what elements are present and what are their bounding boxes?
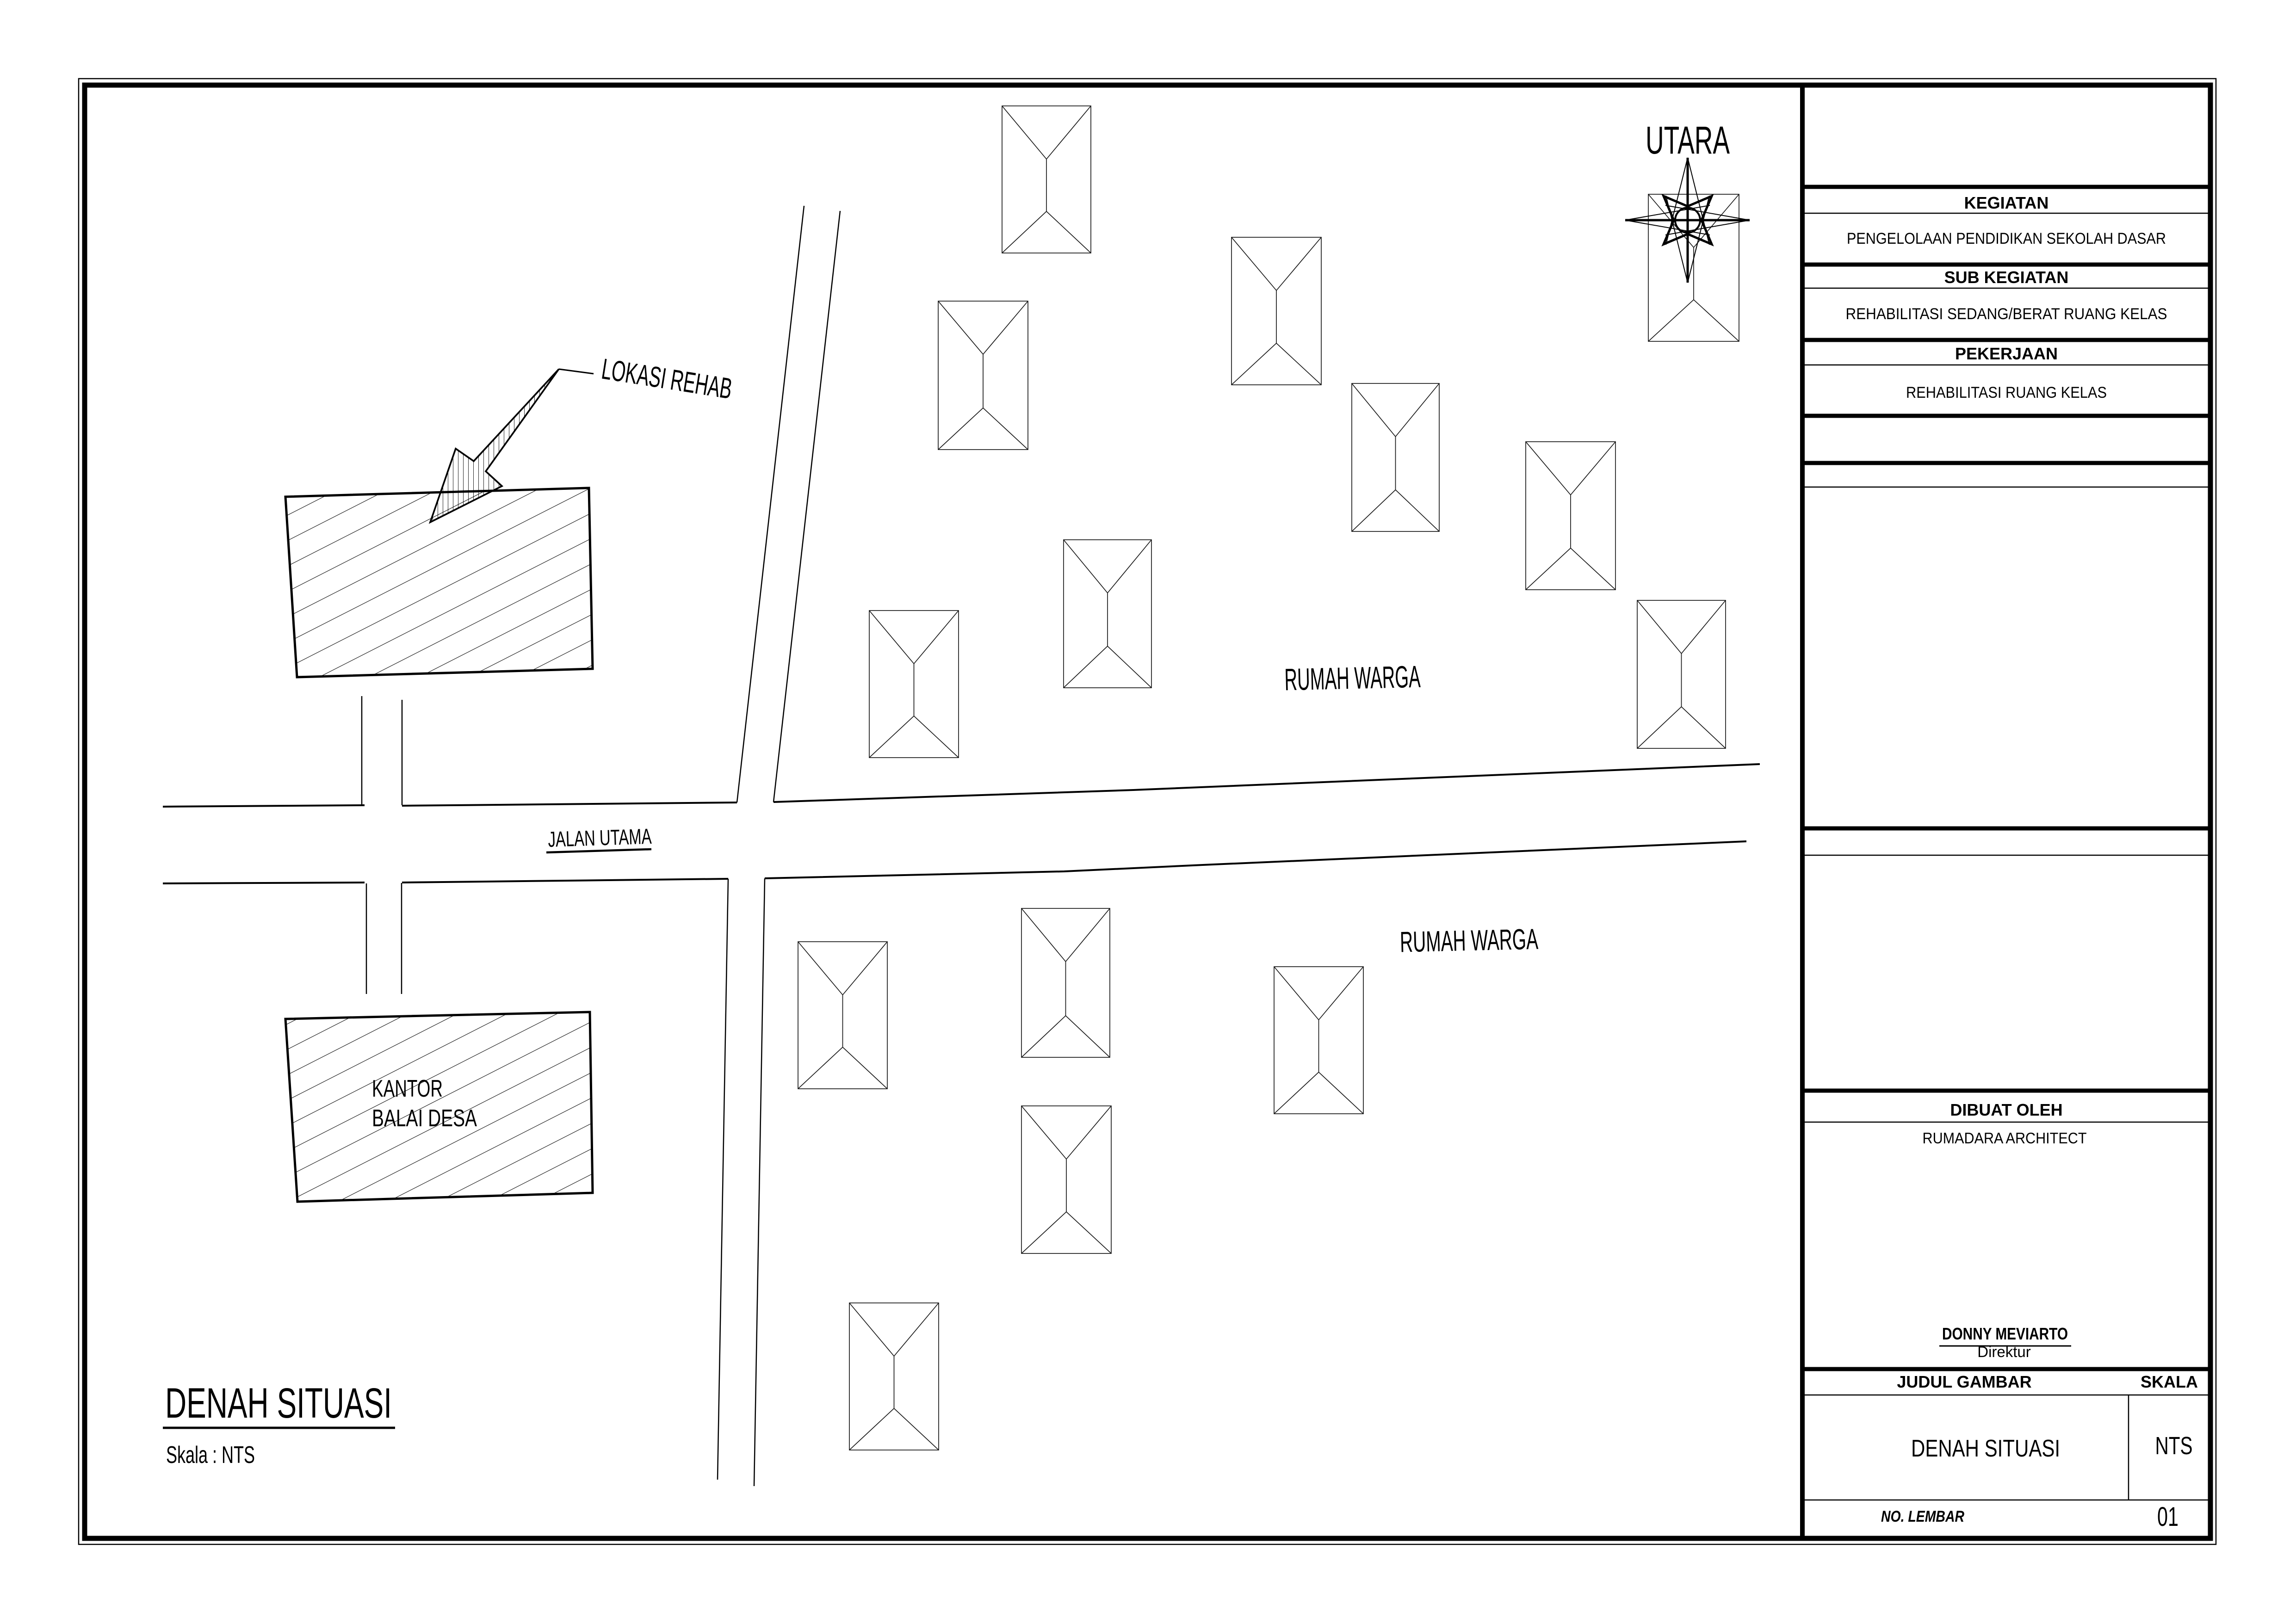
svg-text:PEKERJAAN: PEKERJAAN xyxy=(1955,344,2058,363)
svg-text:01: 01 xyxy=(2157,1502,2178,1532)
svg-text:DIBUAT OLEH: DIBUAT OLEH xyxy=(1950,1100,2062,1119)
svg-text:JUDUL GAMBAR: JUDUL GAMBAR xyxy=(1897,1372,2031,1391)
svg-text:REHABILITASI RUANG KELAS: REHABILITASI RUANG KELAS xyxy=(1906,384,2107,401)
svg-text:RUMADARA ARCHITECT: RUMADARA ARCHITECT xyxy=(1923,1129,2087,1147)
svg-text:RUMAH WARGA: RUMAH WARGA xyxy=(1284,660,1421,697)
svg-text:UTARA: UTARA xyxy=(1646,118,1730,162)
svg-text:Skala : NTS: Skala : NTS xyxy=(166,1442,255,1469)
svg-text:RUMAH WARGA: RUMAH WARGA xyxy=(1399,923,1539,959)
svg-text:KANTOR: KANTOR xyxy=(372,1075,443,1102)
svg-text:DENAH SITUASI: DENAH SITUASI xyxy=(1911,1435,2060,1462)
svg-text:DENAH SITUASI: DENAH SITUASI xyxy=(165,1380,392,1427)
svg-text:SKALA: SKALA xyxy=(2141,1372,2198,1391)
svg-text:KEGIATAN: KEGIATAN xyxy=(1964,193,2049,212)
svg-text:BALAI DESA: BALAI DESA xyxy=(372,1105,477,1132)
svg-text:PENGELOLAAN PENDIDIKAN SEKOLAH: PENGELOLAAN PENDIDIKAN SEKOLAH DASAR xyxy=(1847,230,2166,247)
svg-text:REHABILITASI SEDANG/BERAT RUAN: REHABILITASI SEDANG/BERAT RUANG KELAS xyxy=(1846,305,2167,323)
svg-text:DONNY MEVIARTO: DONNY MEVIARTO xyxy=(1942,1324,2068,1343)
svg-text:JALAN UTAMA: JALAN UTAMA xyxy=(548,824,652,852)
svg-text:NO. LEMBAR: NO. LEMBAR xyxy=(1881,1508,1964,1525)
svg-text:SUB KEGIATAN: SUB KEGIATAN xyxy=(1944,268,2069,287)
svg-text:Direktur: Direktur xyxy=(1977,1343,2031,1360)
svg-text:NTS: NTS xyxy=(2155,1432,2193,1460)
